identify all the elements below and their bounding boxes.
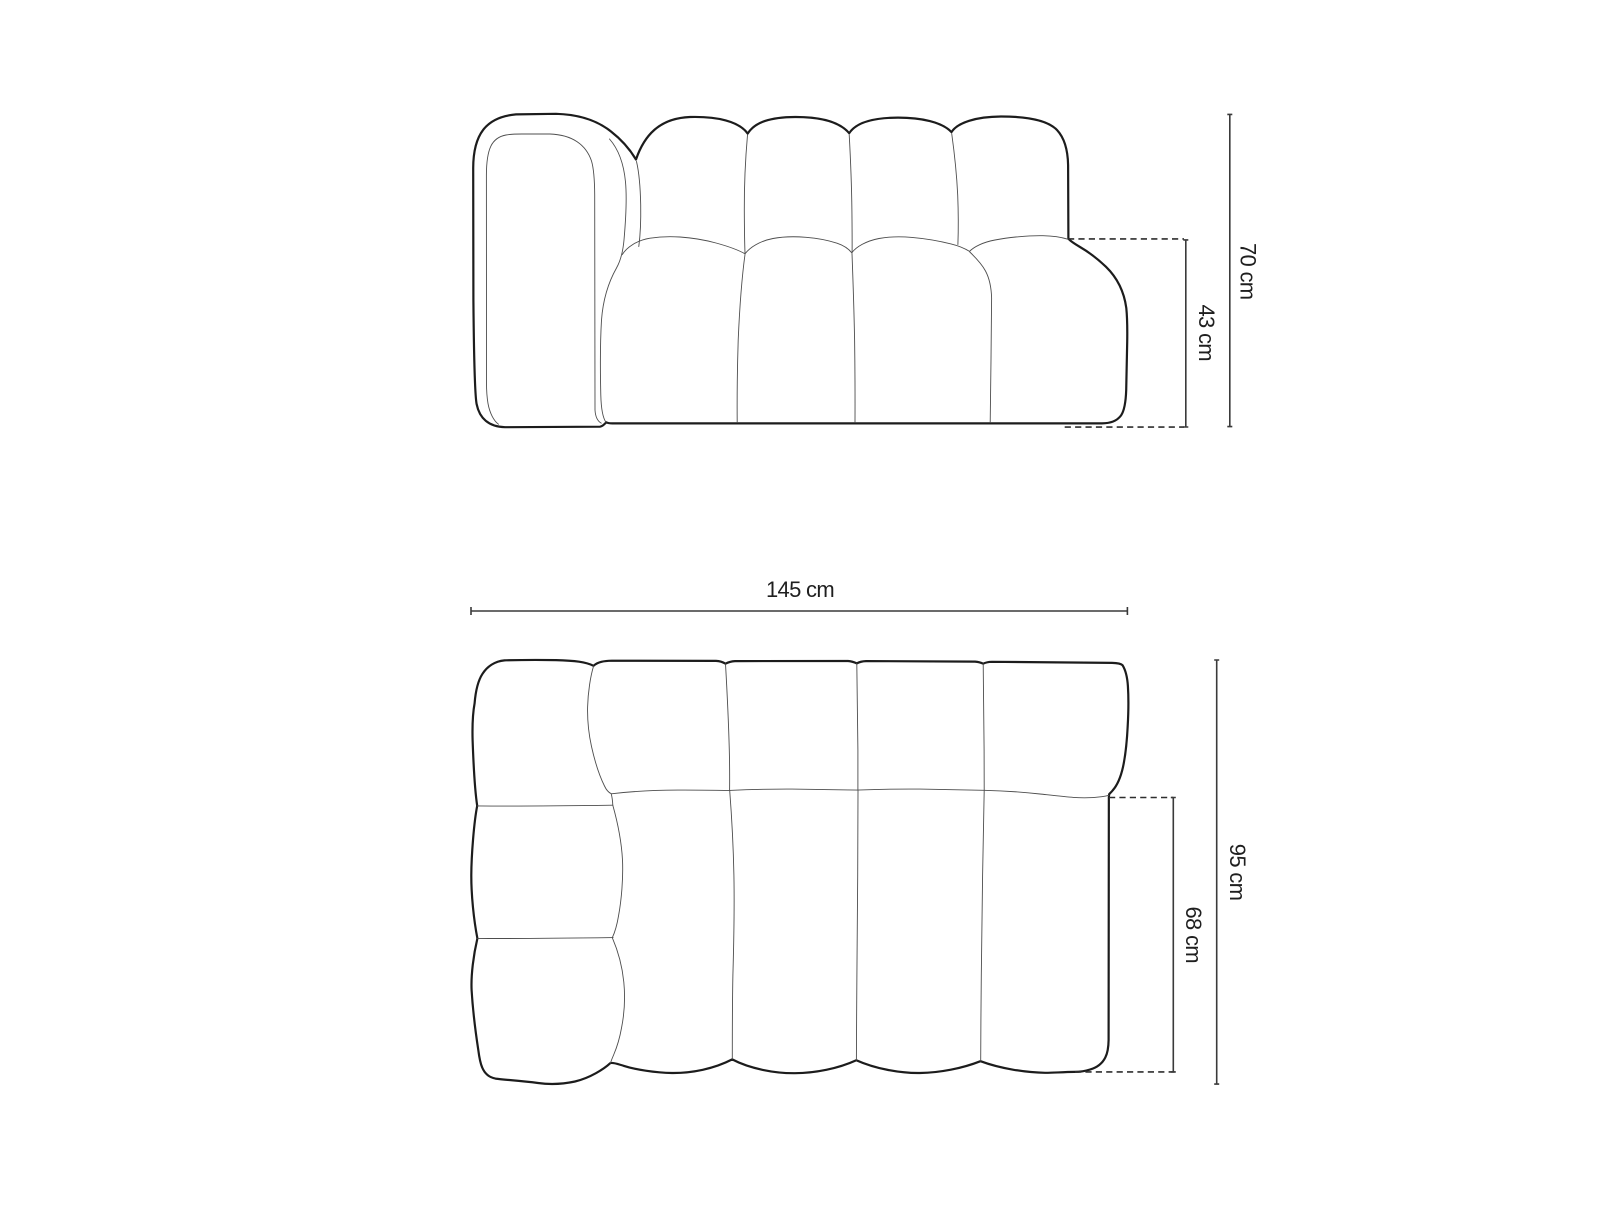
svg-text:43 cm: 43 cm [1194,304,1219,360]
svg-text:95 cm: 95 cm [1225,844,1250,900]
svg-text:70 cm: 70 cm [1235,243,1260,299]
svg-text:145 cm: 145 cm [766,577,834,602]
svg-text:68 cm: 68 cm [1181,906,1206,962]
